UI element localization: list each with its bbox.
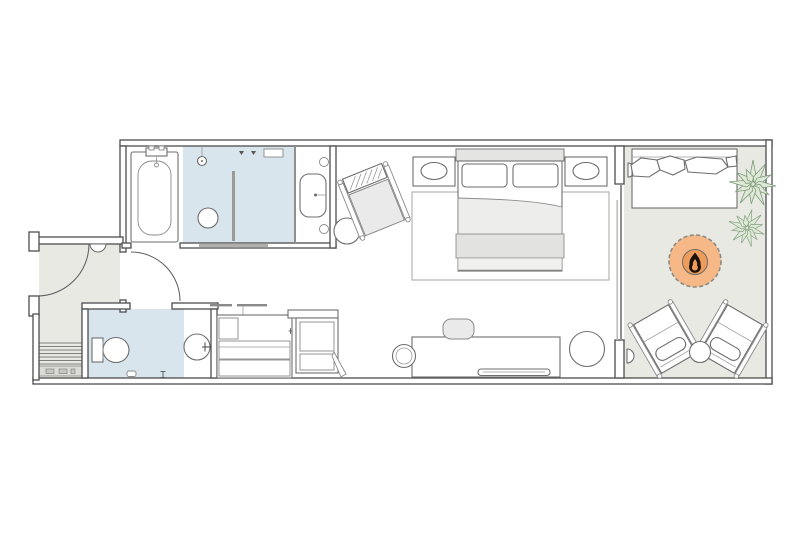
pillow-left [462, 164, 507, 187]
table-lamp-left [421, 163, 447, 180]
cabinet-sink [219, 318, 238, 339]
table-lamp-right [573, 163, 599, 180]
shower-enclosure-edge [294, 146, 296, 243]
entry-wall-top [33, 237, 123, 244]
ottoman [570, 332, 605, 367]
toilet-bowl [103, 338, 129, 363]
vanity-light-lower [320, 225, 329, 234]
wardrobe-shelf-lower [300, 354, 334, 370]
vanity-sink [300, 174, 326, 217]
powder-room-wall-top-left [82, 303, 130, 309]
desk-chair [443, 319, 474, 339]
drawer-top [219, 341, 290, 359]
entry-door-jamb-bottom [29, 296, 39, 316]
bathroom-wall-south-left [122, 243, 131, 248]
minibar-cabinet [217, 315, 292, 378]
toilet-tank [92, 338, 103, 362]
powder-room-wall-right [211, 309, 217, 378]
entry-wall-left [33, 314, 39, 380]
fire-pit [669, 235, 721, 287]
wall-left-upper [120, 146, 126, 252]
floor-plan [0, 0, 800, 533]
terrace-wall-stub-top [615, 146, 624, 184]
pillow-right [513, 164, 558, 187]
bathtub [131, 146, 178, 242]
drawer-bottom [219, 360, 290, 376]
wardrobe-shelf-upper [300, 322, 334, 351]
shower-threshold [199, 244, 268, 247]
paper-holder [127, 371, 136, 377]
powder-room-wall-left [82, 309, 88, 378]
terrace-wall-stub-bottom [615, 340, 624, 378]
foot-throw [458, 258, 562, 270]
king-bed [456, 149, 564, 271]
wall-bottom [33, 378, 772, 384]
wardrobe-top-shelf [288, 310, 338, 318]
wardrobe-unit [288, 310, 346, 377]
headboard [456, 149, 564, 161]
glass-partition [232, 171, 235, 241]
folded-blanket [456, 234, 564, 258]
wall-top [120, 140, 772, 146]
entry-door-jamb-top [29, 232, 39, 251]
daybed-sofa [631, 149, 737, 208]
entry-steps [39, 343, 84, 364]
vanity-light-upper [320, 158, 329, 167]
toilet [92, 338, 129, 363]
floor-drain [198, 208, 218, 228]
wall-niche [264, 149, 283, 157]
drink-table [690, 342, 711, 363]
round-basin [184, 334, 211, 360]
